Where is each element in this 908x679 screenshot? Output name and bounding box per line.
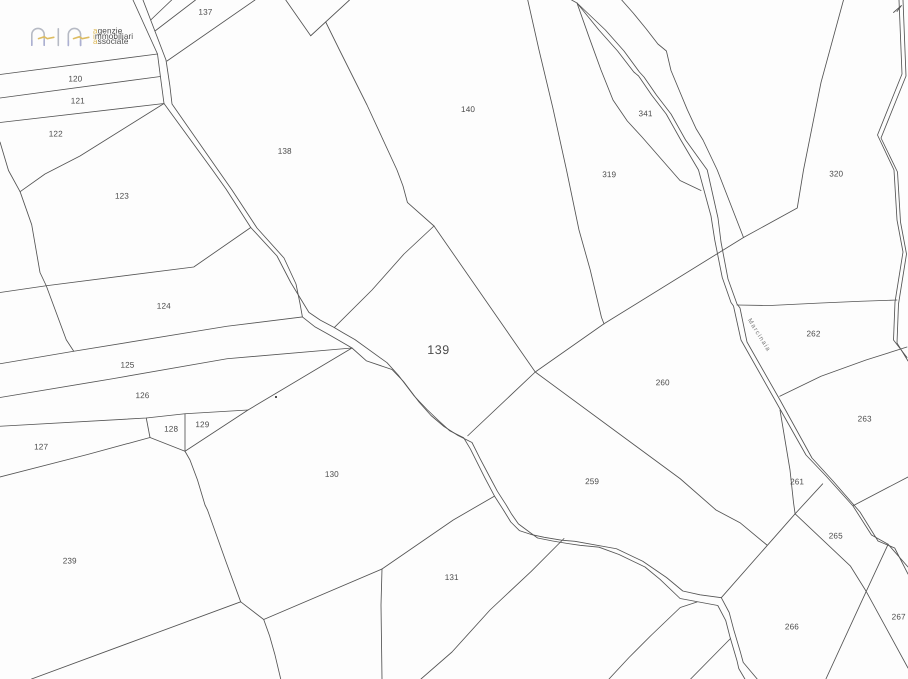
svg-text:131: 131 xyxy=(445,573,459,582)
svg-text:138: 138 xyxy=(278,147,292,156)
svg-text:320: 320 xyxy=(829,169,843,178)
svg-text:319: 319 xyxy=(602,170,616,179)
svg-text:137: 137 xyxy=(198,8,212,17)
svg-text:239: 239 xyxy=(63,557,77,566)
svg-text:123: 123 xyxy=(115,192,129,201)
svg-text:128: 128 xyxy=(164,425,178,434)
svg-text:127: 127 xyxy=(34,442,48,451)
svg-text:120: 120 xyxy=(68,75,82,84)
svg-text:Marcinaia: Marcinaia xyxy=(746,317,772,353)
svg-text:126: 126 xyxy=(135,391,149,400)
svg-text:130: 130 xyxy=(325,470,339,479)
svg-text:260: 260 xyxy=(656,378,670,387)
svg-text:125: 125 xyxy=(120,361,134,370)
svg-text:122: 122 xyxy=(49,130,63,139)
svg-text:267: 267 xyxy=(892,613,906,622)
svg-text:121: 121 xyxy=(71,97,85,106)
svg-text:341: 341 xyxy=(639,109,653,118)
svg-text:261: 261 xyxy=(790,477,804,486)
svg-text:262: 262 xyxy=(807,329,821,338)
svg-text:265: 265 xyxy=(829,531,843,540)
svg-text:263: 263 xyxy=(858,414,872,423)
svg-text:140: 140 xyxy=(461,105,475,114)
svg-text:associate: associate xyxy=(93,37,129,46)
svg-text:129: 129 xyxy=(195,420,209,429)
svg-text:266: 266 xyxy=(785,622,799,631)
svg-text:124: 124 xyxy=(157,302,171,311)
svg-text:259: 259 xyxy=(585,477,599,486)
svg-text:139: 139 xyxy=(427,343,449,357)
